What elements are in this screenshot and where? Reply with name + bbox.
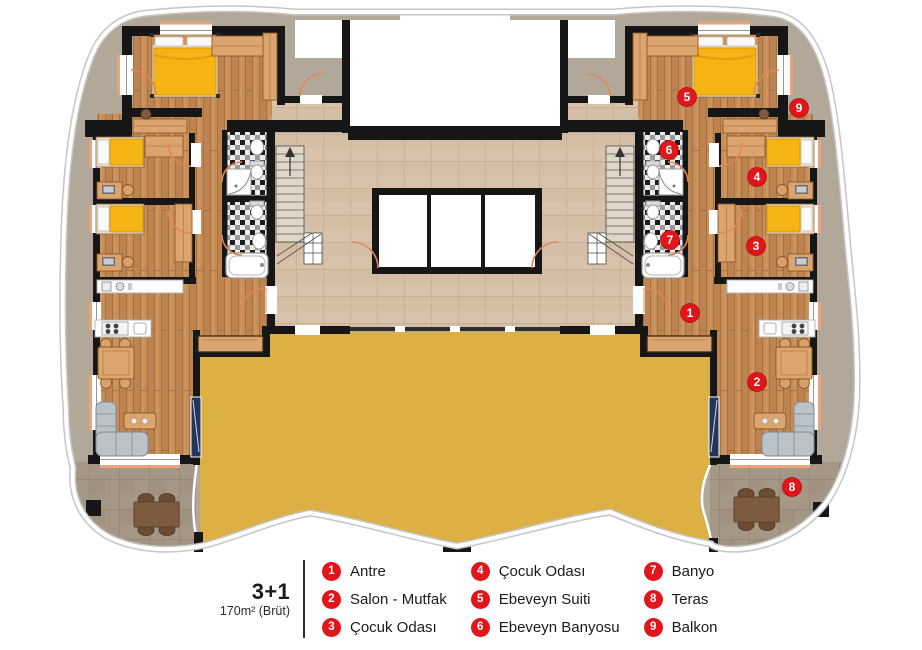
room-marker-8: 8 [783,478,802,497]
svg-text:7: 7 [667,233,674,247]
legend-room-label: Banyo [672,563,715,580]
legend-divider [303,560,305,638]
room-marker-1: 1 [681,304,700,323]
legend-item: 5 Ebeveyn Suiti [471,589,620,609]
legend-number-badge: 5 [471,590,490,609]
svg-text:1: 1 [687,306,694,320]
legend-item: 1 Antre [322,561,447,581]
legend-number-badge: 2 [322,590,341,609]
room-marker-5: 5 [678,88,697,107]
svg-text:5: 5 [684,90,691,104]
room-marker-9: 9 [790,99,809,118]
legend-number-badge: 1 [322,562,341,581]
room-marker-2: 2 [748,373,767,392]
legend-item: 2 Salon - Mutfak [322,589,447,609]
legend-column-3: 7 Banyo 8 Teras 9 Balkon [644,561,718,637]
svg-text:3: 3 [753,239,760,253]
legend-number-badge: 4 [471,562,490,581]
unit-type: 3+1 [212,580,290,603]
room-marker-7: 7 [661,231,680,250]
common-core [267,126,643,332]
legend-room-label: Çocuk Odası [350,619,437,636]
legend-item: 9 Balkon [644,617,718,637]
legend-room-label: Balkon [672,619,718,636]
svg-text:6: 6 [666,143,673,157]
svg-text:9: 9 [796,101,803,115]
legend-number-badge: 9 [644,618,663,637]
legend-item: 7 Banyo [644,561,718,581]
legend-item: 3 Çocuk Odası [322,617,447,637]
legend-room-label: Salon - Mutfak [350,591,447,608]
room-marker-6: 6 [660,141,679,160]
terrace-right-floor [710,462,852,560]
legend-room-label: Teras [672,591,709,608]
legend-column-2: 4 Çocuk Odası 5 Ebeveyn Suiti 6 Ebeveyn … [471,561,620,637]
legend-room-label: Ebeveyn Suiti [499,591,591,608]
floor-plan-page: 123456789 3+1 170m² (Brüt) 1 Antre 2 Sal… [0,0,922,650]
legend-number-badge: 6 [471,618,490,637]
elevator [372,188,542,274]
svg-text:4: 4 [754,170,761,184]
legend-number-badge: 7 [644,562,663,581]
svg-text:8: 8 [789,480,796,494]
legend-room-label: Antre [350,563,386,580]
floor-plan-canvas: 123456789 [0,0,922,650]
legend-room-label: Çocuk Odası [499,563,586,580]
room-marker-4: 4 [748,168,767,187]
unit-area: 170m² (Brüt) [212,605,290,618]
legend-item: 6 Ebeveyn Banyosu [471,617,620,637]
legend-room-label: Ebeveyn Banyosu [499,619,620,636]
legend-number-badge: 8 [644,590,663,609]
legend-column-1: 1 Antre 2 Salon - Mutfak 3 Çocuk Odası [322,561,447,637]
unit-info: 3+1 170m² (Brüt) [212,580,290,618]
legend: 3+1 170m² (Brüt) 1 Antre 2 Salon - Mutfa… [212,560,718,638]
svg-text:2: 2 [754,375,761,389]
legend-item: 4 Çocuk Odası [471,561,620,581]
legend-number-badge: 3 [322,618,341,637]
room-marker-3: 3 [747,237,766,256]
legend-item: 8 Teras [644,589,718,609]
legend-columns: 1 Antre 2 Salon - Mutfak 3 Çocuk Odası 4… [322,561,718,637]
